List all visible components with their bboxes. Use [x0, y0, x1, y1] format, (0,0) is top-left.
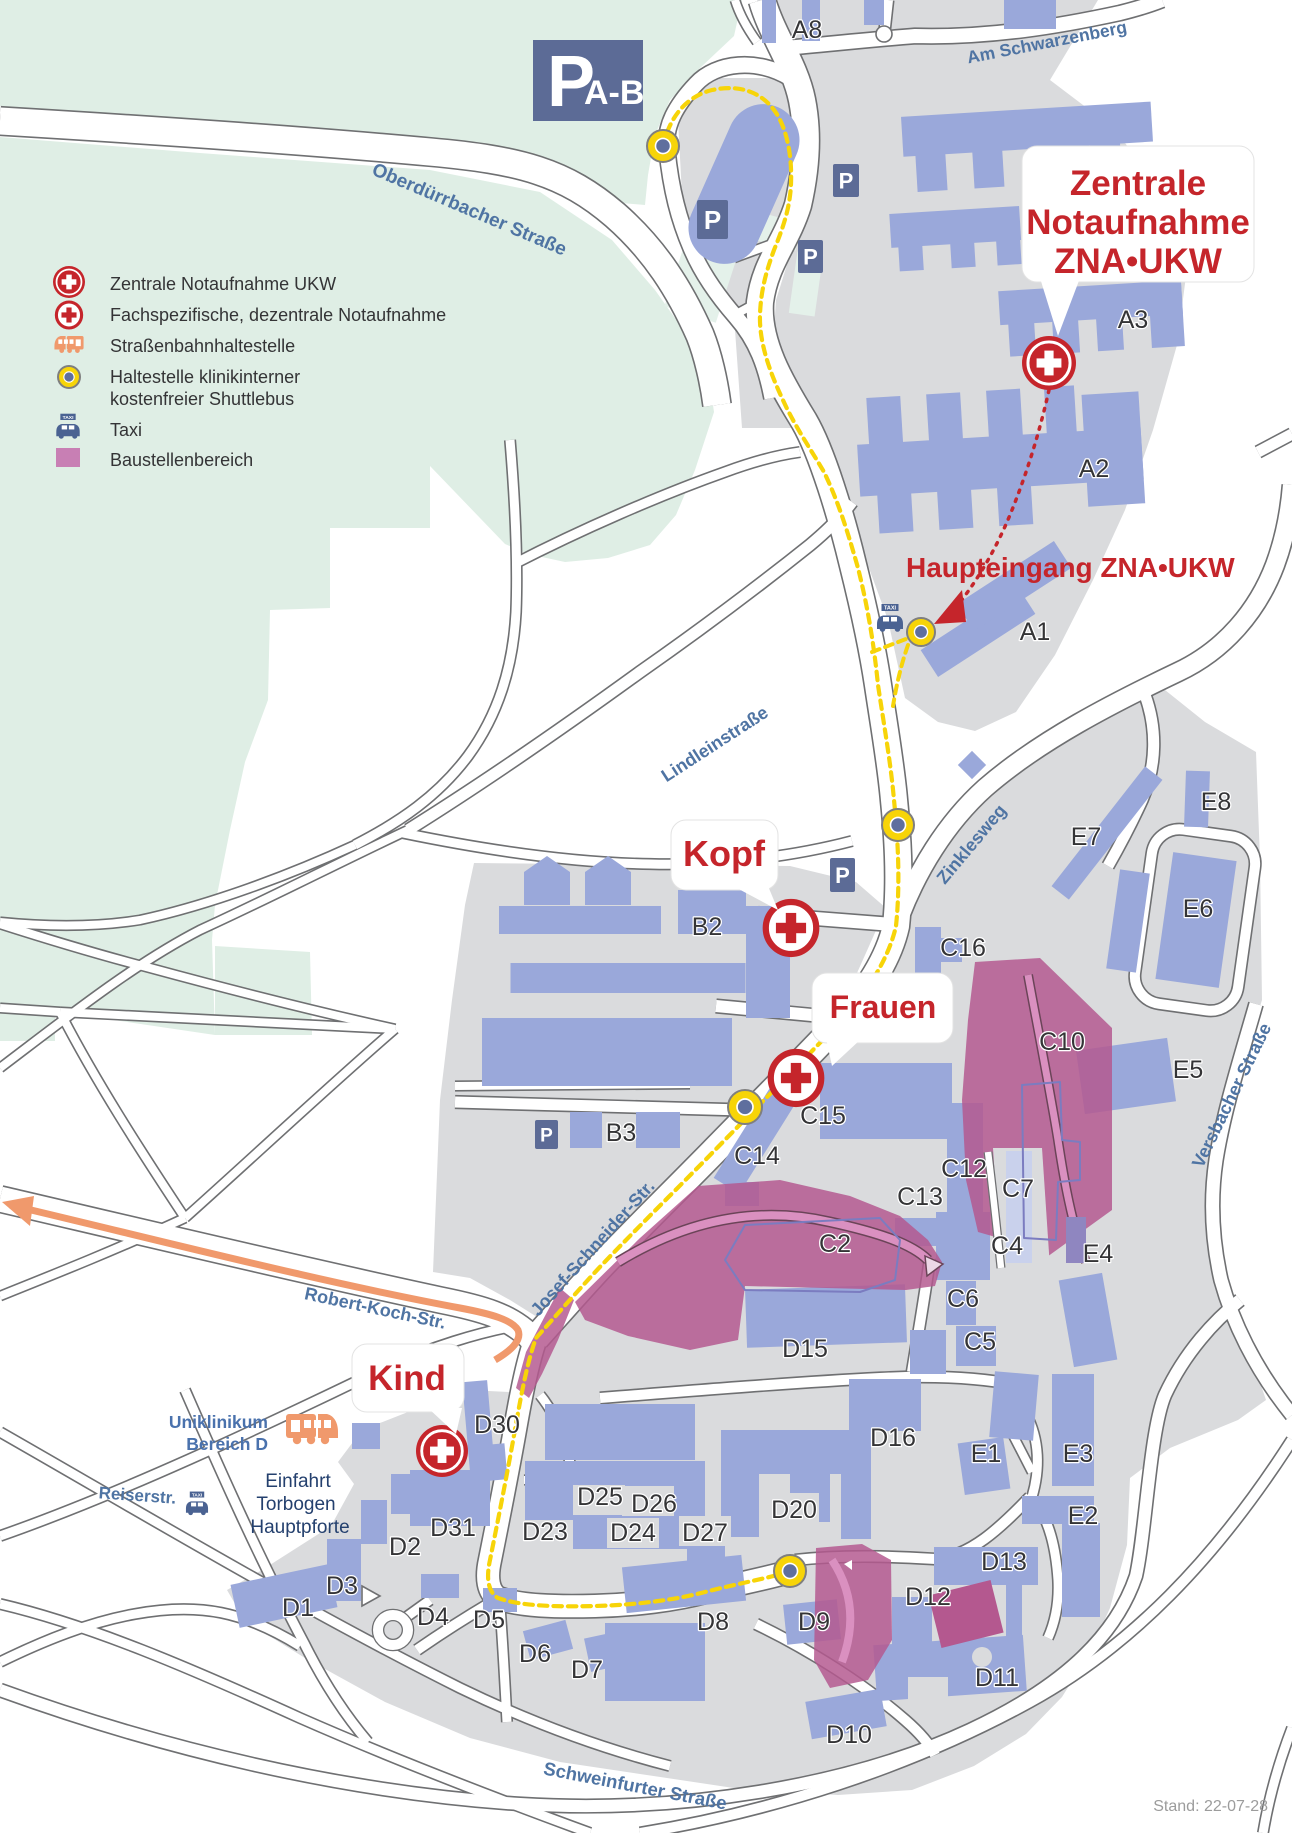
svg-text:P: P [835, 863, 850, 888]
svg-text:D16: D16 [870, 1424, 916, 1452]
svg-text:D2: D2 [389, 1533, 421, 1561]
svg-text:Frauen: Frauen [830, 989, 937, 1025]
svg-text:D12: D12 [905, 1583, 951, 1611]
svg-text:D3: D3 [326, 1572, 358, 1600]
svg-text:P: P [803, 244, 818, 269]
svg-text:C12: C12 [941, 1155, 987, 1183]
svg-text:Notaufnahme: Notaufnahme [1026, 203, 1250, 242]
svg-text:E8: E8 [1201, 788, 1232, 816]
svg-text:D4: D4 [417, 1603, 449, 1631]
svg-text:D27: D27 [682, 1519, 728, 1547]
svg-text:TAXI: TAXI [63, 415, 75, 421]
svg-text:C14: C14 [734, 1142, 780, 1170]
svg-text:E6: E6 [1183, 895, 1214, 923]
svg-text:E4: E4 [1083, 1240, 1114, 1268]
svg-text:D26: D26 [631, 1490, 677, 1518]
svg-text:Uniklinikum: Uniklinikum [169, 1412, 268, 1432]
svg-text:Torbogen: Torbogen [256, 1494, 335, 1515]
svg-text:D5: D5 [473, 1606, 505, 1634]
svg-text:D1: D1 [282, 1594, 314, 1622]
svg-text:A8: A8 [792, 16, 823, 44]
svg-text:Zentrale: Zentrale [1070, 164, 1206, 203]
svg-text:D15: D15 [782, 1335, 828, 1363]
svg-text:C7: C7 [1002, 1175, 1034, 1203]
svg-text:Stand: 22-07-28: Stand: 22-07-28 [1153, 1798, 1268, 1815]
svg-text:Baustellenbereich: Baustellenbereich [110, 450, 253, 470]
svg-text:D13: D13 [981, 1548, 1027, 1576]
svg-text:A2: A2 [1079, 455, 1110, 483]
svg-text:E5: E5 [1173, 1056, 1204, 1084]
svg-text:D25: D25 [577, 1483, 623, 1511]
svg-text:D20: D20 [771, 1496, 817, 1524]
svg-text:Haltestelle klinikinterner: Haltestelle klinikinterner [110, 367, 300, 387]
svg-text:D6: D6 [519, 1640, 551, 1668]
svg-text:B3: B3 [606, 1119, 637, 1147]
svg-text:A-B: A-B [584, 74, 644, 112]
svg-text:P: P [839, 168, 854, 193]
svg-text:D31: D31 [430, 1514, 476, 1542]
svg-text:E2: E2 [1068, 1502, 1099, 1530]
svg-text:Fachspezifische, dezentrale No: Fachspezifische, dezentrale Notaufnahme [110, 305, 446, 325]
svg-text:D7: D7 [571, 1656, 603, 1684]
svg-text:P: P [540, 1125, 553, 1146]
svg-text:Straßenbahnhaltestelle: Straßenbahnhaltestelle [110, 336, 295, 356]
svg-text:ZNA•UKW: ZNA•UKW [1054, 242, 1222, 281]
svg-text:D9: D9 [798, 1608, 830, 1636]
svg-text:Hauptpforte: Hauptpforte [250, 1517, 349, 1538]
svg-text:C6: C6 [947, 1285, 979, 1313]
svg-text:Bereich D: Bereich D [186, 1434, 268, 1454]
svg-text:D23: D23 [522, 1518, 568, 1546]
svg-text:Taxi: Taxi [110, 420, 142, 440]
svg-text:C13: C13 [897, 1183, 943, 1211]
svg-text:A3: A3 [1118, 306, 1149, 334]
svg-text:C5: C5 [964, 1328, 996, 1356]
svg-text:D11: D11 [975, 1664, 1019, 1692]
svg-text:E7: E7 [1071, 823, 1102, 851]
svg-text:TAXI: TAXI [884, 606, 897, 612]
svg-text:Zentrale Notaufnahme UKW: Zentrale Notaufnahme UKW [110, 274, 336, 294]
svg-text:TAXI: TAXI [192, 1492, 202, 1497]
svg-text:E3: E3 [1063, 1440, 1094, 1468]
svg-text:C15: C15 [800, 1102, 846, 1130]
svg-text:P: P [704, 205, 721, 235]
svg-text:B2: B2 [692, 913, 723, 941]
svg-text:D10: D10 [826, 1721, 872, 1749]
svg-text:C16: C16 [940, 934, 986, 962]
svg-text:C4: C4 [991, 1232, 1023, 1260]
svg-text:Kopf: Kopf [683, 833, 766, 874]
svg-text:Einfahrt: Einfahrt [265, 1471, 331, 1492]
svg-text:D8: D8 [697, 1608, 729, 1636]
svg-text:C2: C2 [819, 1230, 851, 1258]
svg-text:C10: C10 [1039, 1028, 1085, 1056]
svg-text:D24: D24 [610, 1519, 656, 1547]
svg-text:D30: D30 [474, 1411, 520, 1439]
svg-text:Haupteingang ZNA•UKW: Haupteingang ZNA•UKW [906, 552, 1235, 583]
svg-text:E1: E1 [971, 1440, 1002, 1468]
svg-text:kostenfreier Shuttlebus: kostenfreier Shuttlebus [110, 389, 294, 409]
svg-text:Kind: Kind [368, 1359, 446, 1398]
svg-text:A1: A1 [1020, 618, 1051, 646]
